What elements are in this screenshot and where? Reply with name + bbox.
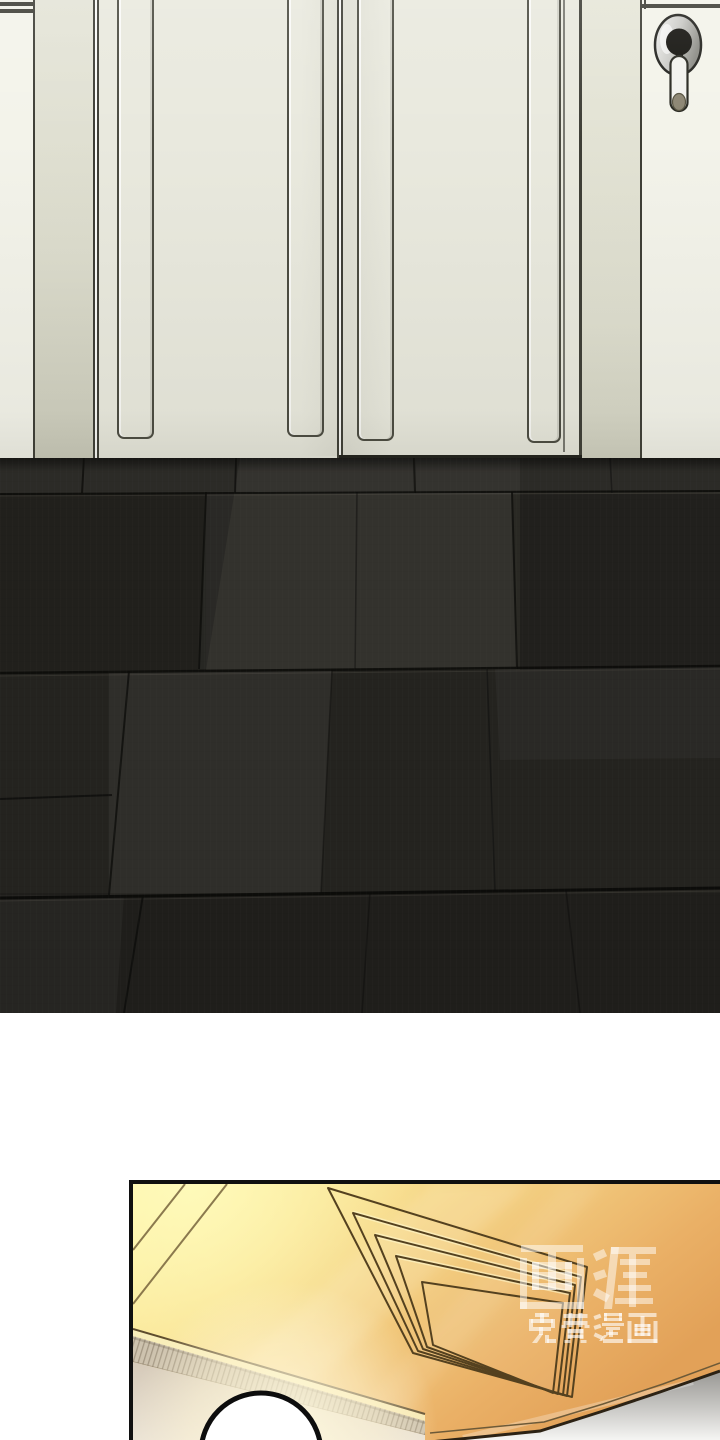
comic-page: 画涯 免费漫画 — [0, 0, 720, 1440]
wall-shading — [0, 0, 720, 468]
panel-artwork — [133, 1184, 720, 1440]
tile-floor — [0, 458, 720, 1013]
door-wall — [0, 0, 720, 468]
panel-gutter — [0, 1013, 720, 1180]
scene-doors-and-floor — [0, 0, 720, 1013]
tile-floor-lines — [0, 458, 720, 1013]
comic-panel-ceiling: 画涯 免费漫画 — [129, 1180, 720, 1440]
